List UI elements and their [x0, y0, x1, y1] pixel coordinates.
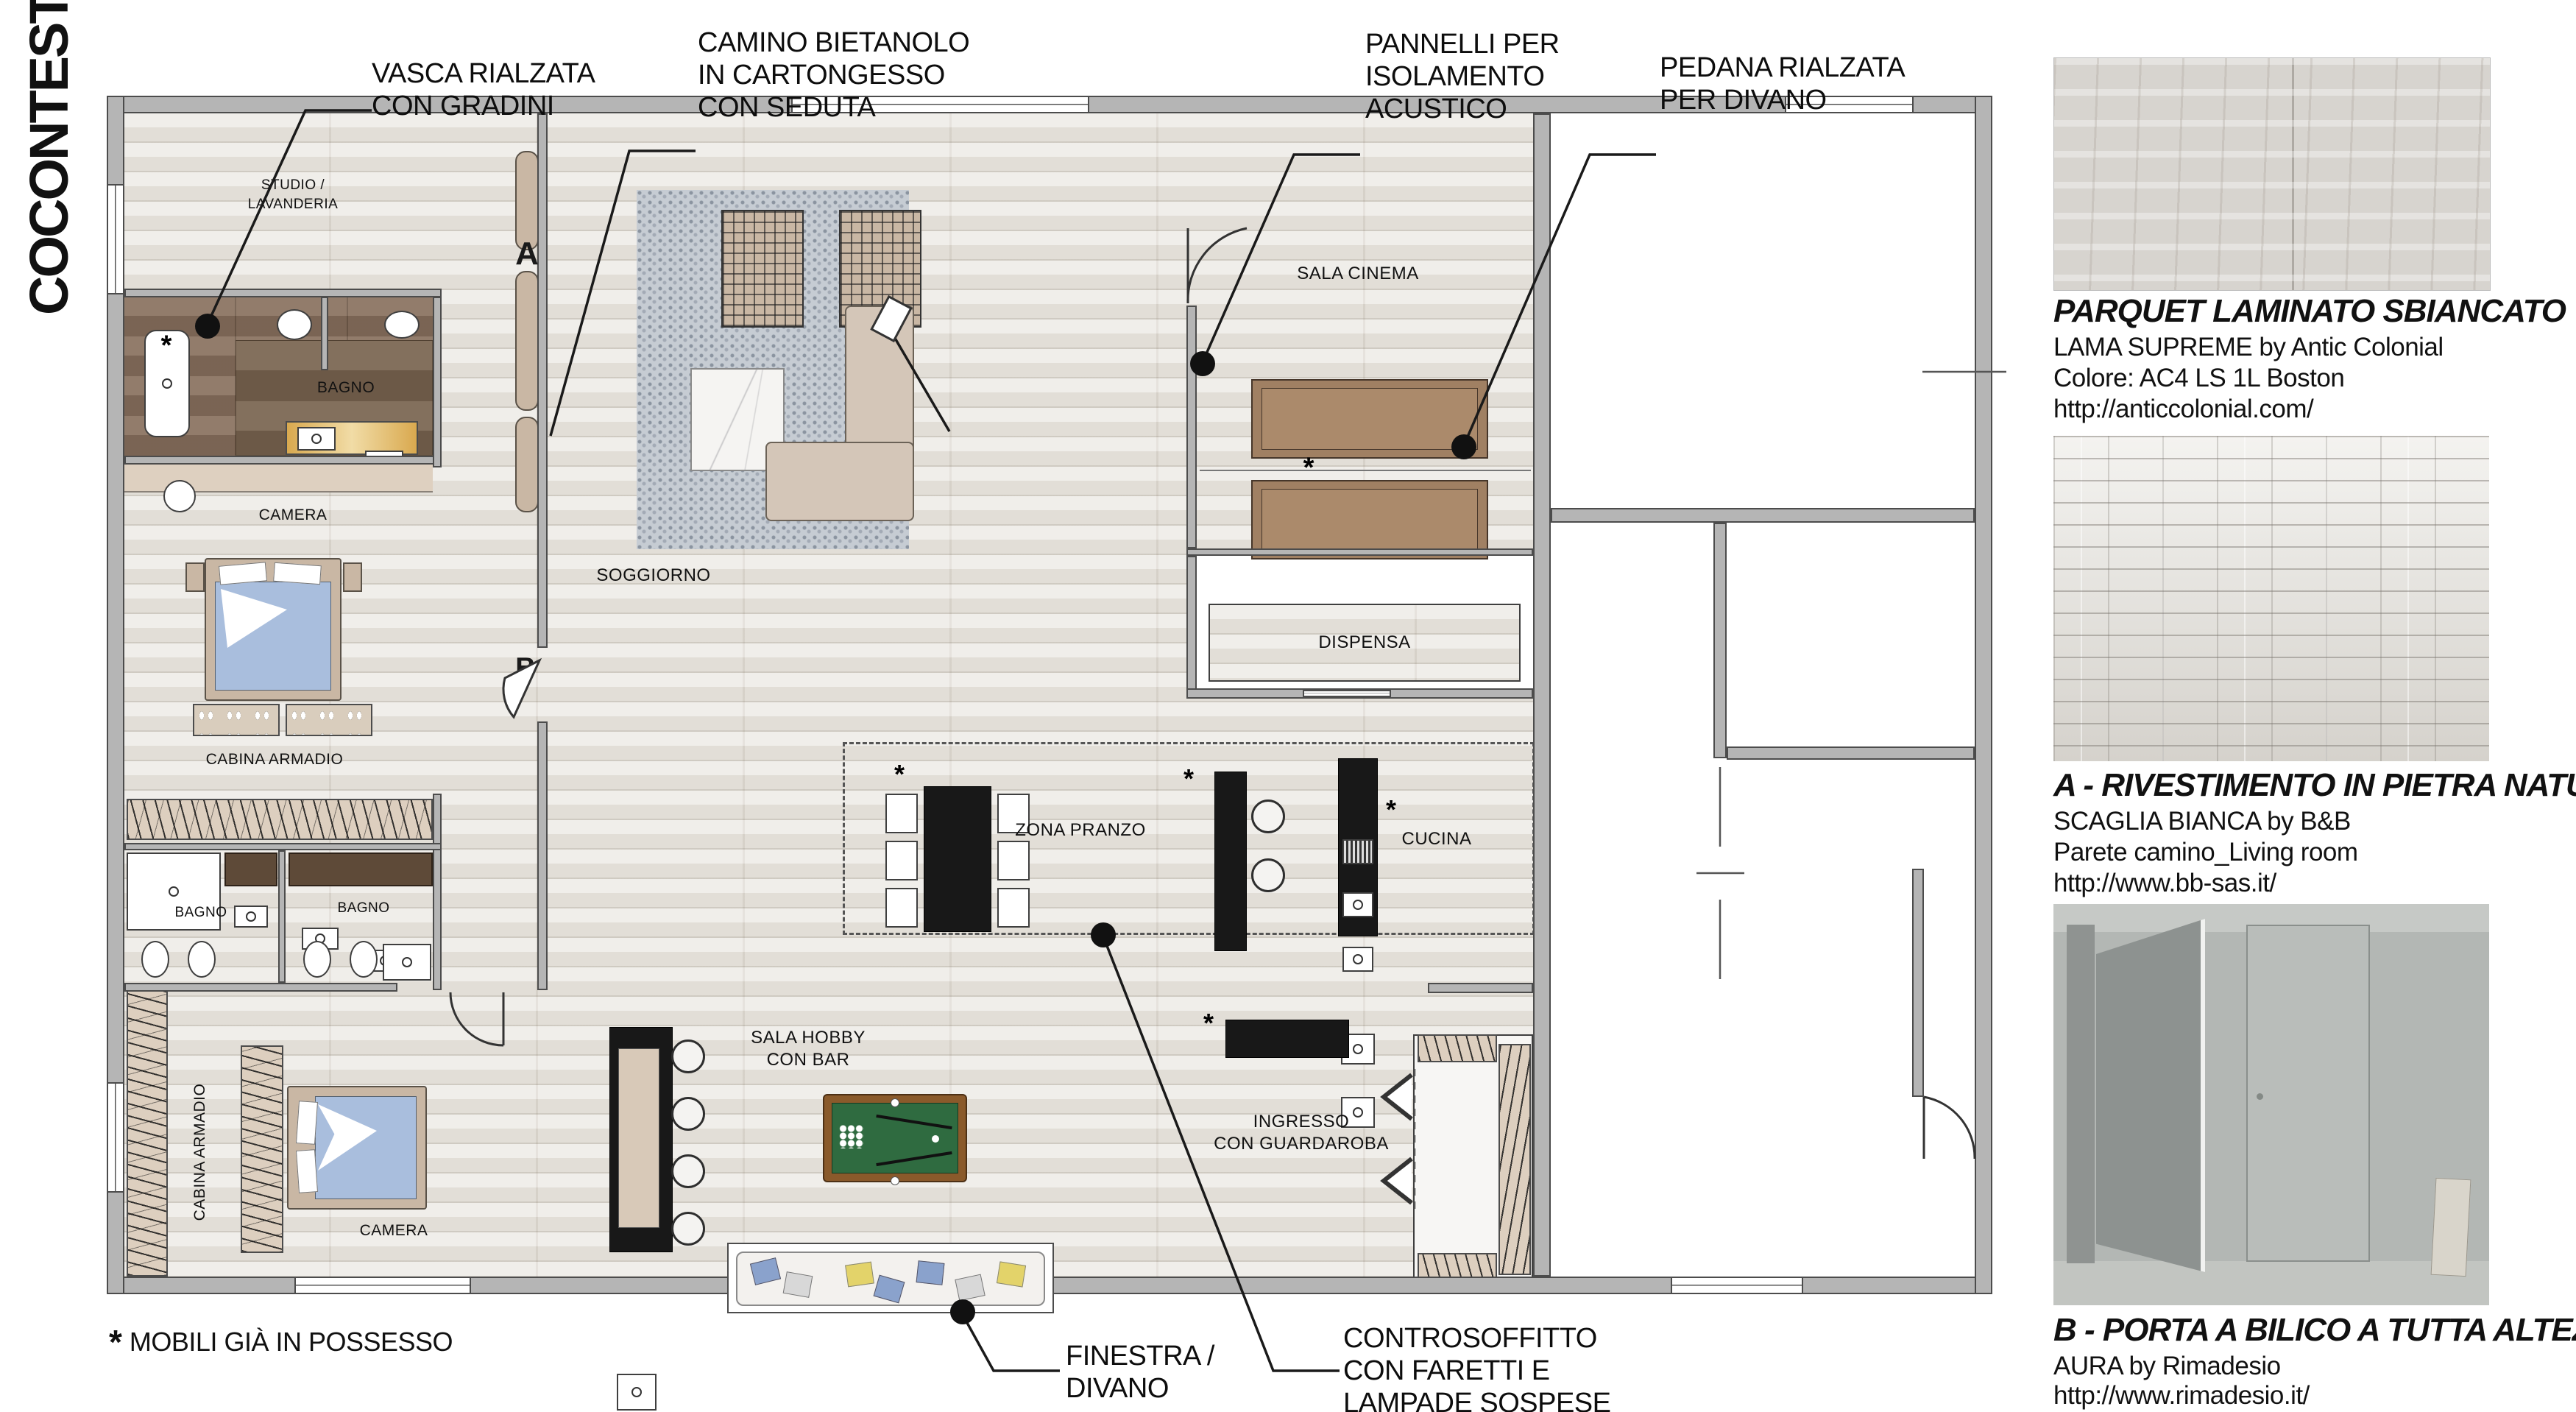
wall-segment: [124, 843, 442, 850]
parquet-line3: http://anticcolonial.com/: [2053, 395, 2313, 424]
room-label-soggiorno: SOGGIORNO: [596, 565, 710, 586]
callout-pedana-line1: PEDANA RIALZATA: [1660, 52, 1905, 84]
window: [294, 1277, 471, 1294]
parquet-line1: LAMA SUPREME by Antic Colonial: [2053, 333, 2444, 362]
toilet: [303, 941, 331, 978]
wall-segment: [537, 721, 548, 990]
room-label-sala-cinema: SALA CINEMA: [1297, 264, 1419, 284]
callout-finestra-line2: DIVANO: [1066, 1372, 1214, 1405]
door-render-opening: [2067, 925, 2095, 1263]
window: [107, 184, 124, 294]
nightstand: [343, 562, 362, 592]
stone-line1: SCAGLIA BIANCA by B&B: [2053, 807, 2351, 836]
bar-stool: [1251, 799, 1285, 833]
leaning-artwork: [2431, 1178, 2471, 1277]
callout-camino-line1: CAMINO BIETANOLO: [698, 27, 969, 59]
toilet: [141, 941, 169, 978]
door-render-open-leaf: [2096, 919, 2205, 1272]
callout-vasca: VASCA RIALZATA CON GRADINI: [372, 57, 595, 122]
door-line1: AURA by Rimadesio: [2053, 1352, 2281, 1381]
room-label-cabina2: CABINA ARMADIO: [191, 1084, 209, 1221]
room-label-camera2: CAMERA: [360, 1222, 428, 1240]
bathroom3-vanity: [289, 853, 433, 886]
room-label-ingresso2: CON GUARDAROBA: [1214, 1134, 1389, 1154]
sink: [234, 906, 268, 928]
dining-chair: [885, 841, 918, 880]
cocontest-logo: COCONTEST: [18, 0, 80, 315]
callout-camino-line2: IN CARTONGESSO: [698, 59, 969, 91]
bidet: [188, 941, 216, 978]
wall-segment: [1975, 96, 1992, 1294]
stone-line3: http://www.bb-sas.it/: [2053, 869, 2276, 898]
parquet-swatch-image: [2053, 57, 2491, 291]
bar-sink: [617, 1374, 657, 1411]
bar-stool: [671, 1212, 705, 1246]
bar-stool: [671, 1039, 705, 1073]
parquet-title: PARQUET LAMINATO SBIANCATO: [2053, 293, 2566, 330]
cushion: [783, 1271, 813, 1298]
neighbor-unit-floor: [1551, 113, 1975, 1277]
door-title: B - PORTA A BILICO A TUTTA ALTEZZA: [2053, 1312, 2576, 1349]
callout-controsoffitto-line1: CONTROSOFFITTO: [1343, 1322, 1610, 1355]
pillow: [296, 1101, 318, 1145]
room-label-camera1: CAMERA: [259, 506, 328, 524]
floorplan-sheet: COCONTEST A B *: [0, 0, 2576, 1412]
door-render-closed-leaf: [2246, 925, 2370, 1262]
footer-note: * MOBILI GIÀ IN POSSESSO: [109, 1322, 453, 1362]
wall-segment: [1186, 556, 1197, 699]
callout-pannelli-line2: ISOLAMENTO: [1365, 60, 1560, 93]
marker-a: A: [515, 236, 539, 272]
room-label-cabina1: CABINA ARMADIO: [206, 751, 344, 769]
callout-finestra: FINESTRA / DIVANO: [1066, 1340, 1214, 1405]
wall-segment: [124, 983, 397, 992]
nightstand: [185, 562, 205, 592]
wall-segment: [433, 794, 442, 990]
owned-asterisk: *: [1303, 453, 1314, 484]
callout-pannelli: PANNELLI PER ISOLAMENTO ACUSTICO: [1365, 28, 1560, 125]
room-label-ingresso: INGRESSO: [1253, 1112, 1350, 1132]
bidet: [384, 311, 420, 339]
callout-pannelli-line3: ACUSTICO: [1365, 93, 1560, 125]
wall-segment: [124, 456, 442, 465]
callout-finestra-line1: FINESTRA /: [1066, 1340, 1214, 1372]
pivot-door-image: [2053, 904, 2489, 1305]
wardrobe-strip: [241, 1045, 283, 1253]
bathroom2-vanity: [224, 853, 277, 886]
callout-vasca-line1: VASCA RIALZATA: [372, 57, 595, 90]
dining-chair: [885, 888, 918, 928]
stone-swatch-image: [2053, 436, 2489, 761]
room-label-cucina: CUCINA: [1401, 829, 1471, 850]
wall-segment: [1533, 113, 1551, 1277]
wall-segment: [278, 850, 286, 983]
entry-console: [1225, 1020, 1349, 1058]
kitchen-island: [1214, 772, 1247, 951]
callout-vasca-line2: CON GRADINI: [372, 90, 595, 122]
stone-line2: Parete camino_Living room: [2053, 838, 2358, 867]
callout-pedana-line2: PER DIVANO: [1660, 84, 1905, 116]
cue-ball: [932, 1135, 939, 1143]
callout-camino: CAMINO BIETANOLO IN CARTONGESSO CON SEDU…: [698, 27, 969, 124]
fireplace-wall-segment: [515, 417, 539, 512]
wall-segment: [321, 297, 328, 370]
wardrobe-clothes: [1498, 1044, 1531, 1275]
callout-controsoffitto-line3: LAMPADE SOSPESE: [1343, 1387, 1610, 1412]
bar-stool: [671, 1154, 705, 1188]
owned-asterisk: *: [1183, 763, 1194, 794]
wall-segment: [1727, 746, 1975, 760]
room-label-bagno2: BAGNO: [174, 905, 227, 921]
door-handle: [2257, 1093, 2263, 1100]
callout-camino-line3: CON SEDUTA: [698, 91, 969, 124]
grill-module: [1342, 839, 1373, 864]
wall-segment: [1428, 983, 1533, 993]
callout-controsoffitto-line2: CON FARETTI E: [1343, 1355, 1610, 1387]
shower: [383, 944, 431, 981]
dining-chair: [885, 794, 918, 833]
pillow: [219, 562, 267, 585]
callout-pannelli-line1: PANNELLI PER: [1365, 28, 1560, 60]
pantry-door: [1303, 690, 1391, 697]
dining-table: [924, 786, 991, 932]
sink: [297, 427, 336, 451]
room-label-studio: STUDIO /: [261, 177, 325, 194]
shoe-rack: [193, 704, 280, 736]
closet-hanging-rail: [127, 799, 433, 840]
cooktop-burners: [1342, 947, 1373, 972]
door-render-floor: [2053, 1261, 2489, 1305]
bidet: [350, 941, 378, 978]
owned-asterisk: *: [894, 759, 905, 790]
room-label-bagno3: BAGNO: [337, 900, 389, 917]
wall-segment: [1186, 548, 1533, 556]
stone-title: A - RIVESTIMENTO IN PIETRA NATURALE: [2053, 767, 2576, 804]
armchair: [721, 210, 804, 328]
wall-segment: [1713, 523, 1727, 758]
platform-edge-line: [1200, 470, 1531, 471]
room-label-bagno1: BAGNO: [317, 379, 375, 397]
room-label-zona-pranzo: ZONA PRANZO: [1015, 820, 1146, 841]
toilet: [277, 309, 312, 340]
door-line2: http://www.rimadesio.it/: [2053, 1381, 2310, 1411]
room-label-studio2: LAVANDERIA: [248, 197, 339, 213]
wardrobe-strip: [127, 990, 168, 1277]
cushion: [997, 1261, 1026, 1287]
bar-stool: [671, 1097, 705, 1131]
dining-chair: [997, 888, 1030, 928]
callout-pedana: PEDANA RIALZATA PER DIVANO: [1660, 52, 1905, 116]
desk-chair: [163, 480, 196, 512]
callout-controsoffitto: CONTROSOFFITTO CON FARETTI E LAMPADE SOS…: [1343, 1322, 1610, 1412]
parquet-line2: Colore: AC4 LS 1L Boston: [2053, 364, 2344, 393]
owned-asterisk: *: [161, 331, 172, 362]
wall-segment: [537, 113, 548, 648]
wall-segment: [124, 289, 442, 297]
owned-asterisk: *: [1203, 1008, 1214, 1039]
footer-asterisk: *: [109, 1323, 122, 1361]
cushion: [916, 1260, 945, 1285]
wall-segment: [1186, 306, 1197, 548]
bar-counter-top: [618, 1048, 659, 1228]
room-label-sala-hobby: SALA HOBBY: [751, 1028, 866, 1048]
window: [107, 1082, 124, 1193]
wardrobe-clothes: [1418, 1034, 1497, 1062]
cinema-sofa-seat: [1262, 489, 1478, 551]
marker-b: B: [515, 653, 535, 685]
footer-note-text: MOBILI GIÀ IN POSSESSO: [130, 1327, 453, 1357]
dining-chair: [997, 841, 1030, 880]
room-label-sala-hobby2: CON BAR: [767, 1050, 850, 1070]
sofa-l-shape: [765, 442, 914, 521]
cinema-sofa-seat: [1262, 388, 1478, 450]
pillow: [296, 1149, 318, 1193]
window: [1671, 1277, 1803, 1294]
shoe-rack: [286, 704, 372, 736]
billiard-ball-rack: [839, 1125, 864, 1148]
owned-asterisk: *: [1386, 794, 1396, 825]
wall-segment: [1551, 508, 1975, 523]
room-label-dispensa: DISPENSA: [1318, 632, 1410, 653]
bar-stool: [1251, 858, 1285, 892]
billiard-pocket: [891, 1176, 899, 1185]
leader-finestra: [963, 1315, 1060, 1371]
cooktop-burners: [1342, 892, 1373, 917]
cushion: [845, 1262, 874, 1288]
billiard-pocket: [891, 1098, 899, 1107]
wall-segment: [1912, 869, 1924, 1097]
pillow: [273, 562, 322, 585]
wall-segment: [433, 297, 442, 467]
fireplace-wall-segment: [515, 271, 539, 411]
